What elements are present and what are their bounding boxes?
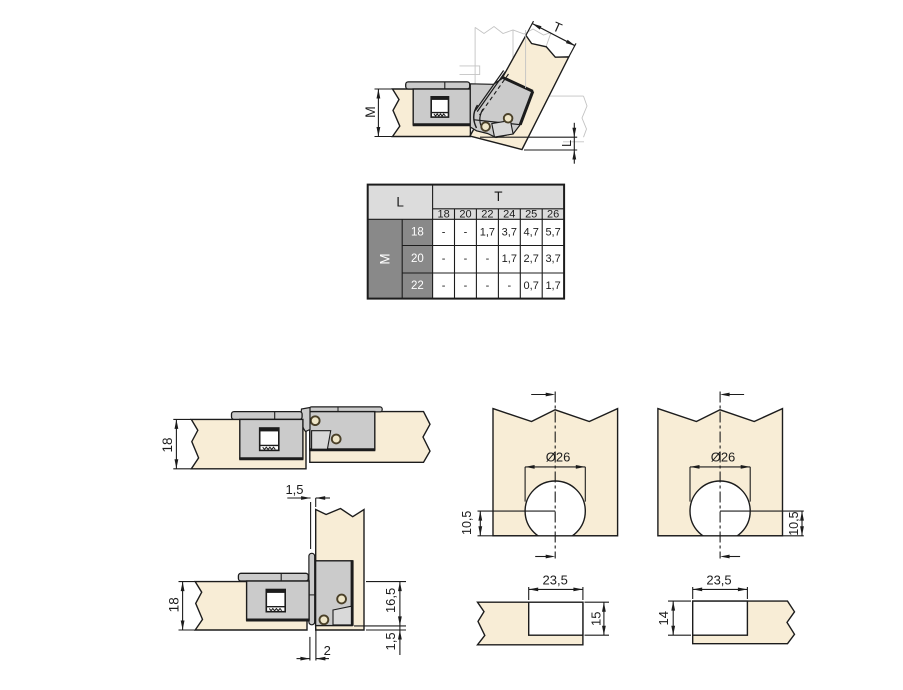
svg-text:-: - [442, 280, 446, 292]
svg-text:1,5: 1,5 [383, 632, 398, 650]
svg-text:-: - [442, 226, 446, 238]
svg-text:4,7: 4,7 [524, 226, 539, 238]
svg-text:5,7: 5,7 [545, 226, 560, 238]
svg-text:18: 18 [411, 226, 424, 238]
svg-text:3,7: 3,7 [502, 226, 517, 238]
svg-text:2,7: 2,7 [524, 253, 539, 265]
svg-text:M: M [377, 253, 392, 264]
svg-text:10,5: 10,5 [787, 511, 801, 535]
svg-text:25: 25 [525, 209, 537, 221]
svg-text:23,5: 23,5 [706, 573, 731, 588]
svg-text:18: 18 [166, 597, 181, 612]
svg-text:20: 20 [459, 209, 471, 221]
svg-text:1,7: 1,7 [480, 226, 495, 238]
svg-text:1,7: 1,7 [545, 280, 560, 292]
svg-text:-: - [464, 280, 468, 292]
svg-text:15: 15 [589, 611, 604, 625]
svg-text:22: 22 [481, 209, 493, 221]
svg-text:0,7: 0,7 [524, 280, 539, 292]
svg-text:16,5: 16,5 [383, 588, 398, 613]
svg-text:23,5: 23,5 [543, 573, 568, 588]
svg-text:-: - [486, 253, 490, 265]
svg-text:24: 24 [503, 209, 515, 221]
svg-text:Ø26: Ø26 [546, 450, 571, 465]
svg-text:-: - [486, 280, 490, 292]
svg-text:T: T [494, 189, 502, 204]
svg-text:M: M [362, 106, 378, 118]
svg-text:2: 2 [324, 643, 331, 658]
svg-text:Ø26: Ø26 [711, 450, 736, 465]
svg-text:10,5: 10,5 [460, 511, 474, 535]
svg-text:-: - [464, 226, 468, 238]
svg-text:L: L [560, 140, 574, 147]
svg-text:26: 26 [547, 209, 559, 221]
svg-text:14: 14 [656, 611, 671, 625]
svg-text:18: 18 [437, 209, 449, 221]
svg-text:22: 22 [411, 280, 424, 292]
svg-text:1,5: 1,5 [285, 482, 303, 497]
svg-text:20: 20 [411, 253, 424, 265]
svg-text:18: 18 [160, 437, 175, 452]
svg-text:L: L [396, 194, 404, 209]
svg-text:-: - [464, 253, 468, 265]
svg-text:-: - [442, 253, 446, 265]
svg-text:3,7: 3,7 [545, 253, 560, 265]
svg-text:-: - [507, 280, 511, 292]
svg-text:1,7: 1,7 [502, 253, 517, 265]
